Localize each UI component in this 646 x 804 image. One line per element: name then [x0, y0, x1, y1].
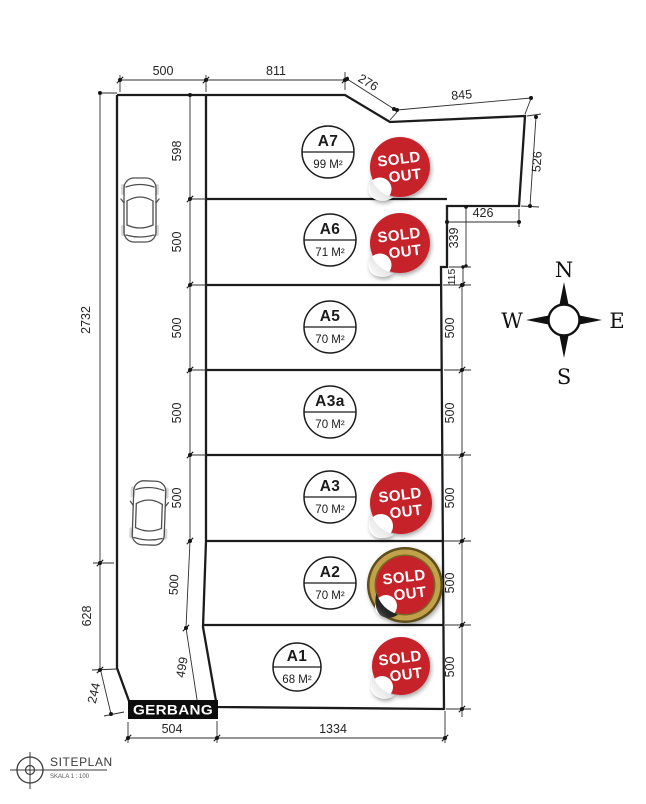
svg-text:71 M²: 71 M² — [315, 247, 345, 259]
gate: GERBANG — [128, 700, 218, 719]
title-block: SITEPLAN SKALA 1 : 100 — [10, 752, 113, 789]
svg-text:A6: A6 — [320, 221, 341, 238]
compass-rose: N E S W — [501, 258, 624, 389]
compass-east-label: E — [609, 309, 624, 333]
plot-label-a2: A2 70 M² — [304, 557, 356, 609]
dim-bottom-1334: 1334 — [319, 722, 347, 736]
dim-left-499-a1: 499 — [173, 656, 190, 679]
sold-out-badge-a3: SOLD OUT — [369, 472, 432, 538]
sold-out-badge-a1: SOLD OUT — [371, 637, 430, 699]
plot-label-a7: A7 99 M² — [302, 126, 354, 178]
siteplan-drawing: 500 811 276 845 526 426 339 115 500 500 … — [0, 0, 646, 804]
compass-circle — [549, 305, 580, 336]
dim-right-115: 115 — [446, 268, 458, 285]
dimensions-top: 500 811 276 845 — [117, 64, 533, 120]
dimensions-left-inner: 598 500 500 500 500 500 499 — [166, 93, 207, 706]
sold-out-badge-a7: SOLD OUT — [369, 137, 431, 201]
svg-text:A3: A3 — [320, 478, 341, 495]
dim-right-500-a3a: 500 — [443, 403, 457, 424]
svg-text:99 M²: 99 M² — [313, 159, 343, 171]
dim-right-426: 426 — [473, 206, 494, 220]
gate-label: GERBANG — [133, 702, 213, 718]
sold-out-badge-a2-gold: SOLD OUT — [367, 547, 443, 623]
dim-right-339: 339 — [447, 228, 461, 249]
plot-label-a1: A1 68 M² — [273, 643, 321, 691]
dim-bottom-504: 504 — [162, 722, 183, 736]
siteplan-scale: SKALA 1 : 100 — [50, 774, 90, 780]
dim-left-500-a5: 500 — [170, 318, 184, 339]
svg-text:70 M²: 70 M² — [315, 419, 345, 431]
compass-north-label: N — [555, 258, 573, 282]
svg-text:70 M²: 70 M² — [315, 590, 345, 602]
sold-out-badge-a6: SOLD OUT — [369, 213, 431, 277]
dim-right-500-a1: 500 — [443, 657, 457, 678]
plot-label-a5: A5 70 M² — [304, 301, 356, 353]
svg-text:A7: A7 — [318, 133, 339, 150]
dim-left-500-a2: 500 — [166, 574, 181, 596]
dim-left-500-a3a: 500 — [170, 403, 184, 424]
dim-top-845: 845 — [451, 87, 473, 103]
compass-south-label: S — [557, 365, 571, 389]
dim-left-2732: 2732 — [79, 306, 93, 334]
svg-text:A1: A1 — [287, 648, 308, 665]
dim-right-526: 526 — [529, 151, 544, 173]
siteplan-page: 500 811 276 845 526 426 339 115 500 500 … — [0, 0, 646, 804]
svg-text:A3a: A3a — [315, 393, 345, 410]
dim-right-500-a5: 500 — [443, 318, 457, 339]
dimensions-right: 526 426 339 115 500 500 500 500 500 — [443, 114, 545, 717]
dim-left-500-a6: 500 — [170, 232, 184, 253]
dim-left-244: 244 — [85, 681, 103, 705]
plot-label-a6: A6 71 M² — [304, 214, 356, 266]
svg-text:A2: A2 — [320, 564, 341, 581]
sold-out-badges: SOLD OUT SOLD OUT SOLD OUT — [367, 137, 443, 699]
siteplan-title: SITEPLAN — [50, 755, 113, 769]
svg-text:68 M²: 68 M² — [282, 674, 312, 686]
car-icon-top — [121, 178, 159, 242]
dim-right-500-a2: 500 — [443, 573, 457, 594]
compass-west-label: W — [501, 309, 523, 333]
svg-text:A5: A5 — [320, 308, 341, 325]
plot-label-a3a: A3a 70 M² — [304, 386, 356, 438]
dim-top-811: 811 — [266, 64, 286, 78]
plot-label-a3: A3 70 M² — [304, 471, 356, 523]
dim-left-500-a3: 500 — [170, 488, 184, 509]
dim-left-628: 628 — [80, 606, 94, 627]
car-icon-bottom — [129, 480, 169, 545]
svg-text:70 M²: 70 M² — [315, 334, 345, 346]
svg-text:70 M²: 70 M² — [315, 504, 345, 516]
plot-labels: A7 99 M² A6 71 M² A5 70 M² A3a 70 M² A3 … — [273, 126, 356, 691]
dim-right-500-a3: 500 — [443, 488, 457, 509]
dim-top-500: 500 — [153, 64, 174, 78]
dim-left-598: 598 — [170, 141, 184, 162]
dim-top-276: 276 — [356, 71, 381, 94]
